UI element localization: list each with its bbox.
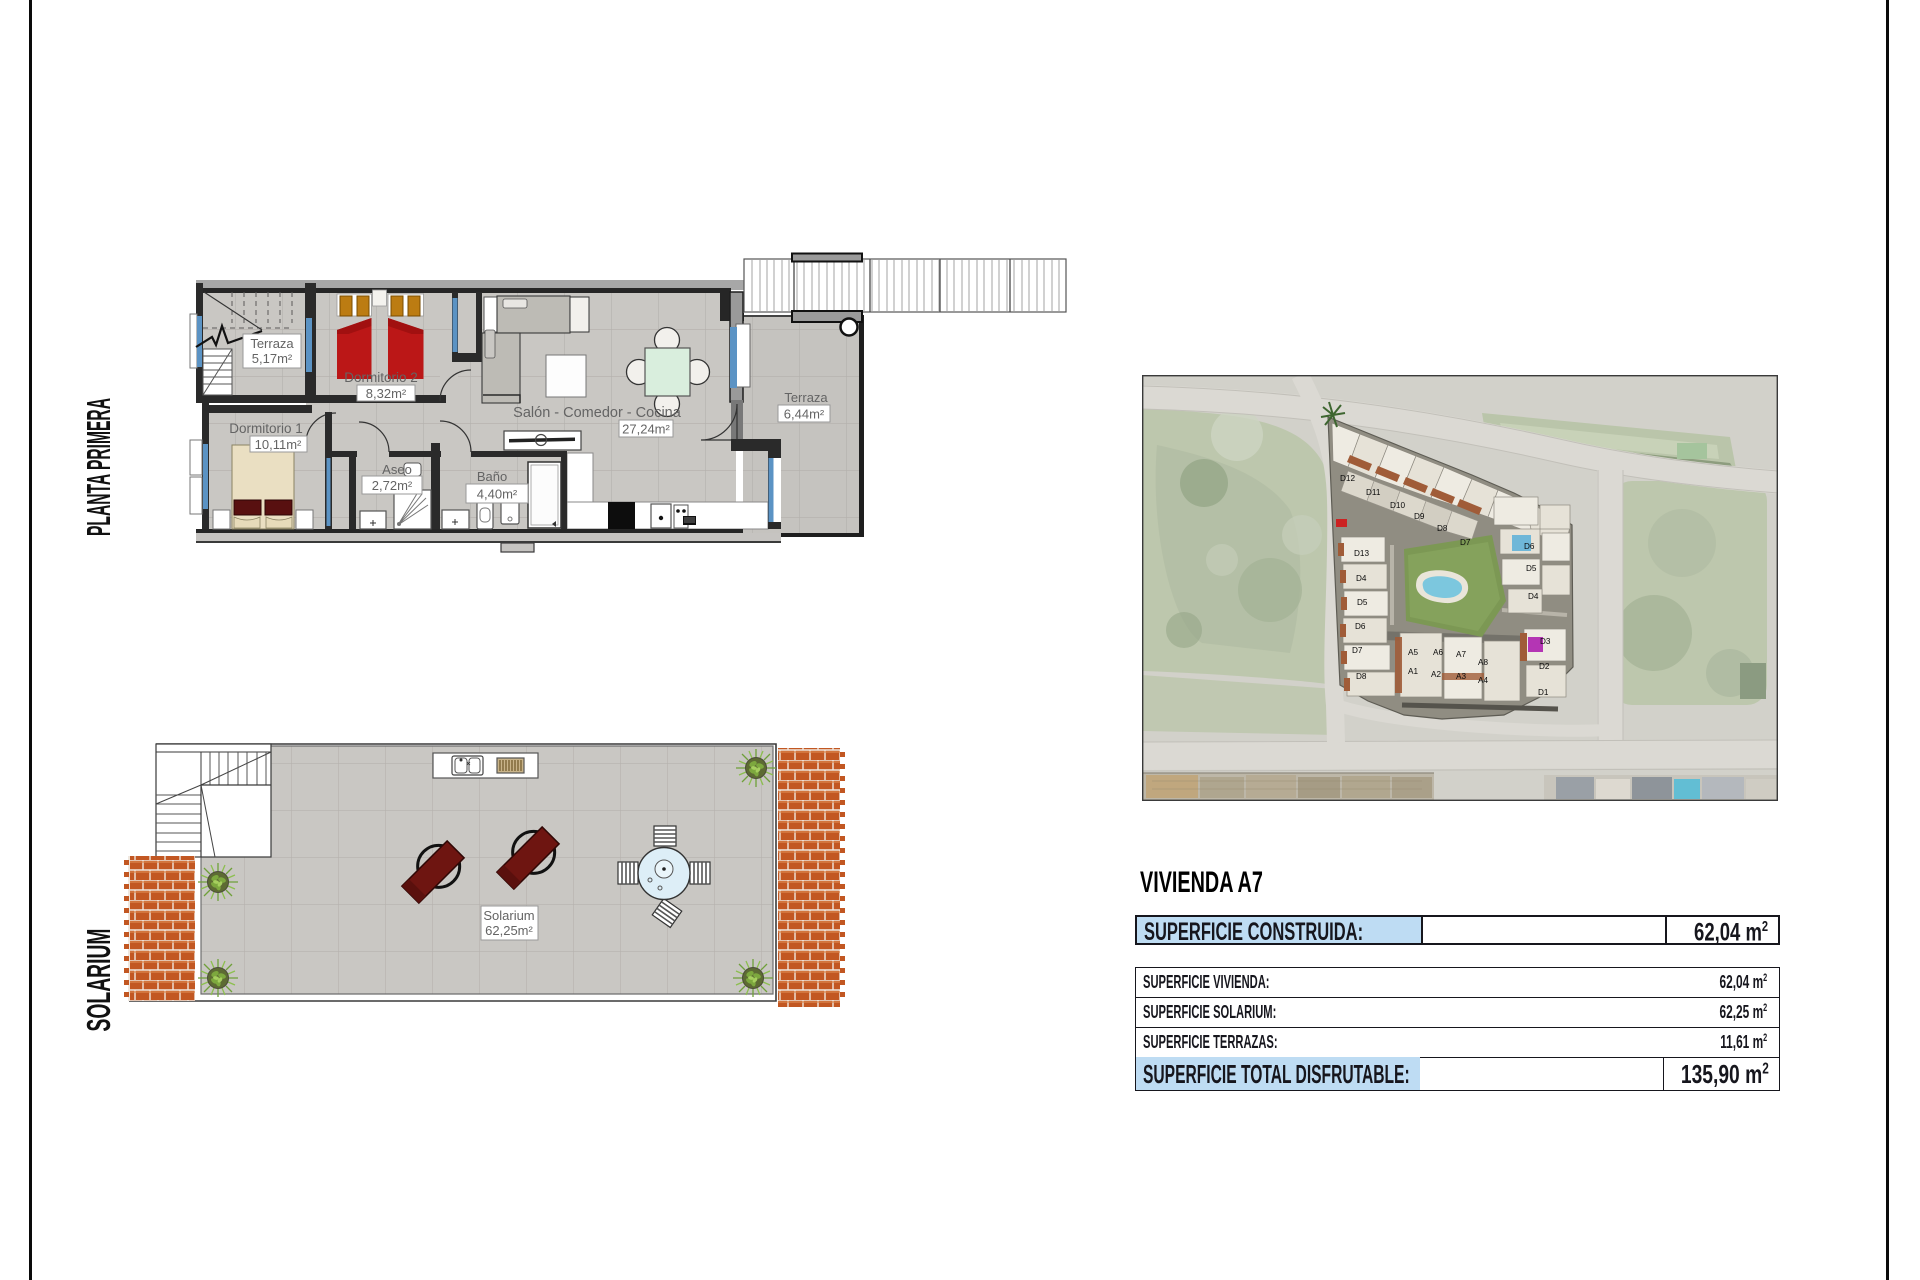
svg-text:D7: D7	[1460, 538, 1471, 547]
svg-text:D8: D8	[1437, 524, 1448, 533]
svg-text:D5: D5	[1357, 598, 1368, 607]
svg-text:Dormitorio 2: Dormitorio 2	[344, 370, 418, 385]
svg-text:D6: D6	[1355, 622, 1366, 631]
svg-text:D8: D8	[1356, 672, 1367, 681]
svg-text:8,32m²: 8,32m²	[366, 386, 407, 401]
svg-text:A2: A2	[1431, 670, 1441, 679]
svg-text:Dormitorio 1: Dormitorio 1	[229, 421, 303, 436]
svg-text:SOLARIUM: SOLARIUM	[80, 929, 117, 1032]
svg-text:A6: A6	[1433, 648, 1443, 657]
svg-text:D12: D12	[1340, 474, 1355, 483]
svg-text:Terraza: Terraza	[784, 390, 828, 405]
svg-text:D1: D1	[1538, 688, 1549, 697]
svg-text:D2: D2	[1539, 662, 1550, 671]
svg-text:27,24m²: 27,24m²	[622, 422, 670, 437]
svg-text:D13: D13	[1354, 549, 1369, 558]
svg-text:A8: A8	[1478, 658, 1488, 667]
svg-text:5,17m²: 5,17m²	[252, 351, 293, 366]
svg-text:D4: D4	[1528, 592, 1539, 601]
svg-text:A7: A7	[1456, 650, 1466, 659]
svg-text:D11: D11	[1366, 488, 1381, 497]
svg-text:D4: D4	[1356, 574, 1367, 583]
svg-text:D10: D10	[1390, 501, 1405, 510]
svg-text:Terraza: Terraza	[250, 336, 294, 351]
svg-text:Aseo: Aseo	[382, 462, 412, 477]
svg-text:A5: A5	[1408, 648, 1418, 657]
svg-text:62,25m²: 62,25m²	[485, 923, 533, 938]
svg-text:6,44m²: 6,44m²	[784, 407, 825, 422]
svg-text:D7: D7	[1352, 646, 1363, 655]
svg-text:2,72m²: 2,72m²	[372, 478, 413, 493]
svg-text:A4: A4	[1478, 676, 1488, 685]
svg-text:A1: A1	[1408, 667, 1418, 676]
svg-text:4,40m²: 4,40m²	[477, 487, 518, 502]
svg-text:D3: D3	[1540, 637, 1551, 646]
svg-text:A3: A3	[1456, 672, 1466, 681]
svg-text:Baño: Baño	[477, 469, 507, 484]
svg-text:D5: D5	[1526, 564, 1537, 573]
svg-text:Solarium: Solarium	[483, 908, 534, 923]
svg-text:D9: D9	[1414, 512, 1425, 521]
svg-text:D6: D6	[1524, 542, 1535, 551]
svg-text:10,11m²: 10,11m²	[255, 437, 302, 452]
svg-text:PLANTA PRIMERA: PLANTA PRIMERA	[80, 398, 117, 536]
svg-text:Salón - Comedor - Cocina: Salón - Comedor - Cocina	[513, 405, 682, 421]
